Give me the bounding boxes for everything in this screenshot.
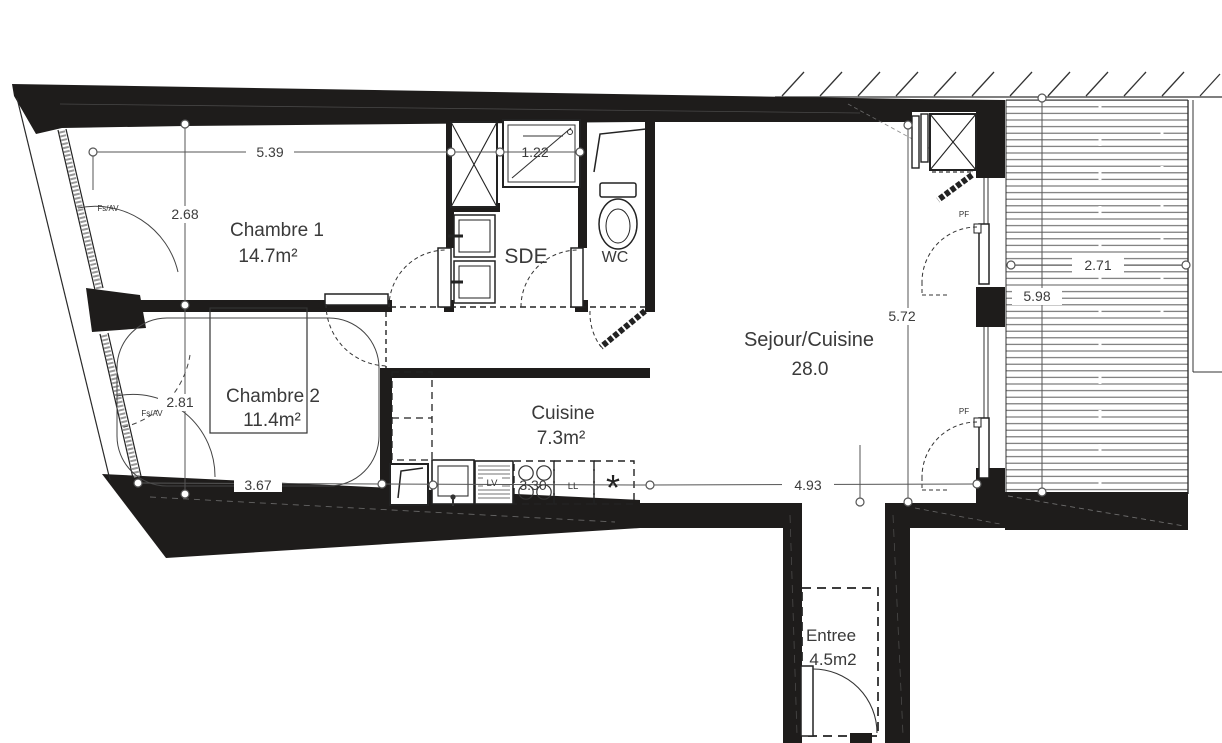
room-label-sde: SDE — [504, 245, 547, 268]
room-label-entree: Entree — [806, 626, 856, 645]
window-label-ch1: Fs/AV — [97, 204, 119, 213]
dim-sejour-width: 4.93 — [794, 477, 821, 493]
room-label-chambre1: Chambre 1 — [230, 220, 324, 241]
toilet — [599, 183, 637, 249]
room-label-sejour: Sejour/Cuisine — [744, 329, 874, 351]
dim-ch2-width: 3.67 — [244, 477, 271, 493]
pf-door-1 — [922, 178, 989, 295]
door-swing-wc — [590, 311, 601, 347]
wall-bottom-mid — [640, 503, 788, 528]
room-area-chambre2: 11.4m² — [243, 410, 301, 431]
door-leaf-chambre2 — [325, 294, 388, 305]
window-label-ch2: Fs/AV — [141, 409, 163, 418]
pf-label-1: PF — [959, 210, 969, 219]
room-area-sejour: 28.0 — [792, 359, 829, 380]
door-leaf-wc — [601, 311, 645, 347]
dim-sde-niche: 1.22 — [521, 144, 548, 160]
dim-ch1-width: 5.39 — [256, 144, 283, 160]
wall-entree-right — [885, 503, 910, 743]
pf-door-2 — [922, 327, 989, 490]
window-frame — [921, 114, 928, 162]
room-area-chambre1: 14.7m² — [238, 246, 297, 267]
dim-cuisine-width: 3.30 — [519, 477, 546, 493]
floor-plan-canvas: 5.39 2.68 1.22 2.81 3.67 3.30 4.93 5.72 … — [0, 0, 1222, 743]
room-area-cuisine: 7.3m² — [537, 428, 586, 449]
wall-pillar-balcony — [976, 100, 1005, 178]
window-band-edge — [108, 333, 141, 476]
dim-balcon-height: 5.98 — [1023, 288, 1050, 304]
wall-entree-left — [783, 503, 802, 743]
door-leaf-chambre1 — [438, 248, 451, 307]
room-label-chambre2: Chambre 2 — [226, 386, 320, 407]
wall-cuisine-north — [390, 368, 650, 378]
door-swing-entree — [813, 669, 877, 733]
door-swing-chambre2 — [326, 304, 388, 366]
entrance-door — [801, 666, 877, 743]
heater-symbol-wc — [594, 129, 646, 172]
room-area-entree: 4.5m2 — [809, 650, 856, 669]
wall-bottom-left — [102, 474, 640, 558]
vanity-basins — [448, 215, 495, 303]
party-wall-hatch — [775, 72, 1222, 97]
room-label-cuisine: Cuisine — [531, 403, 594, 424]
door-sill — [850, 733, 872, 743]
closet-sejour — [912, 114, 976, 170]
room-label-wc: WC — [602, 249, 629, 266]
dim-ch1-height: 2.68 — [171, 206, 198, 222]
dim-ch2-height: 2.81 — [166, 394, 193, 410]
room-labels: Chambre 1 14.7m² Chambre 2 11.4m² SDE WC… — [226, 220, 874, 669]
closet-door-leaf — [938, 175, 972, 200]
dishwasher-label: LV — [487, 478, 499, 489]
door-leaf-entree — [801, 666, 813, 736]
dim-sejour-height: 5.72 — [888, 308, 915, 324]
asterisk-symbol: * — [606, 467, 620, 508]
dim-balcon-width: 2.71 — [1084, 257, 1111, 273]
kitchen-tall-unit — [392, 372, 432, 460]
wall-balcony-bottom — [1005, 492, 1188, 530]
wall-wc-east — [645, 122, 655, 312]
washer-label: LL — [568, 481, 579, 492]
door-leaf-sde — [571, 248, 583, 307]
floor-plan-page: 5.39 2.68 1.22 2.81 3.67 3.30 4.93 5.72 … — [0, 0, 1222, 743]
shower — [451, 122, 497, 207]
wall-between-pf-doors — [976, 287, 1005, 327]
window-frame — [912, 116, 919, 168]
pf-label-2: PF — [959, 407, 969, 416]
